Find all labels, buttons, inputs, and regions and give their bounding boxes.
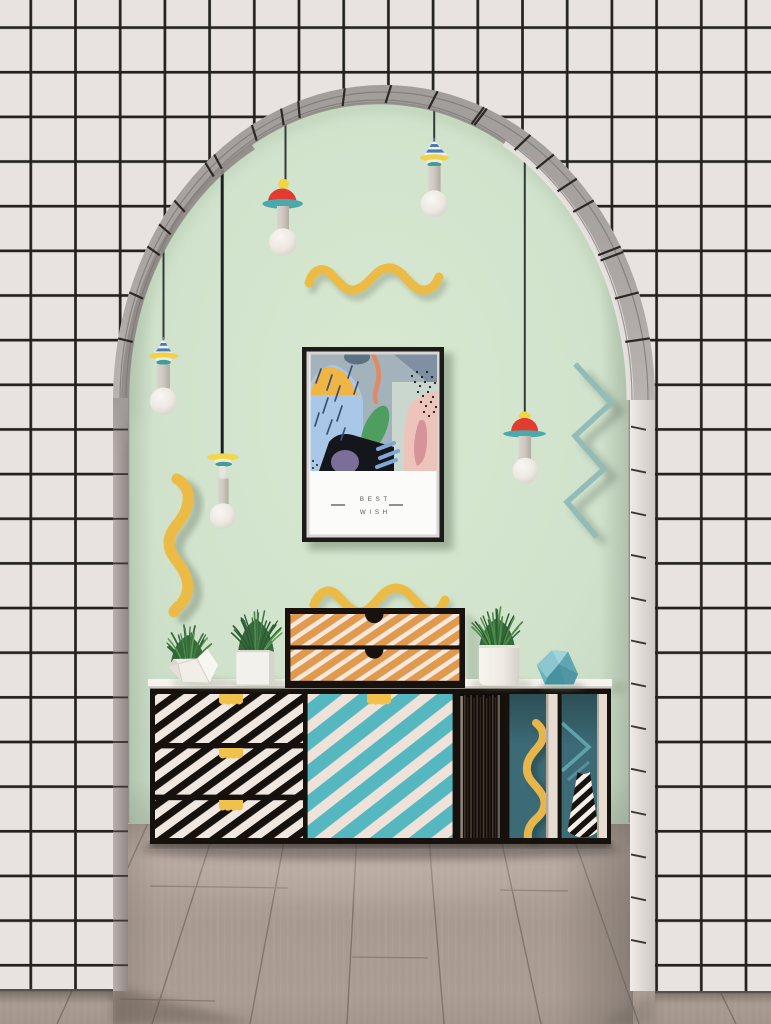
svg-text:B E S T: B E S T — [360, 496, 388, 503]
svg-text:W I S H: W I S H — [360, 509, 388, 516]
